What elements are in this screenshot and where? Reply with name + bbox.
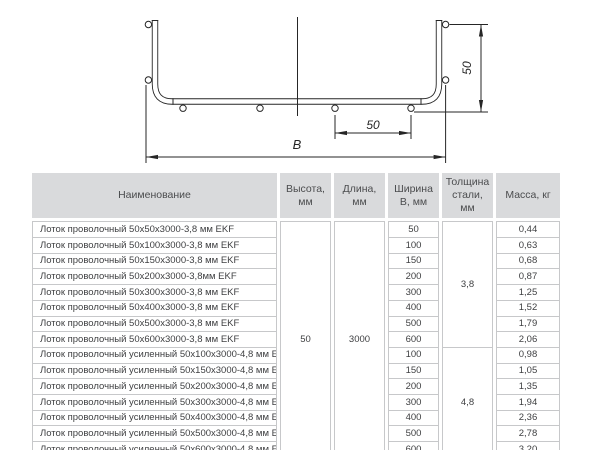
catalog-page: 50 50 B: [0, 0, 600, 450]
width-cell: 400: [388, 301, 439, 317]
product-name-cell: Лоток проволочный усиленный 50х100х3000-…: [32, 348, 277, 364]
width-cell: 150: [388, 254, 439, 270]
width-cell: 200: [388, 379, 439, 395]
width-cell: 200: [388, 269, 439, 285]
header-thickness: Толщина стали, мм: [442, 173, 493, 221]
product-name-cell: Лоток проволочный 50х50х3000-3,8 мм EKF: [32, 221, 277, 238]
product-name-cell: Лоток проволочный 50х500х3000-3,8 мм EKF: [32, 317, 277, 333]
width-cell: 500: [388, 426, 439, 442]
product-name-cell: Лоток проволочный 50х600х3000-3,8 мм EKF: [32, 332, 277, 348]
mass-cell: 0,63: [496, 238, 560, 254]
mass-cell: 0,87: [496, 269, 560, 285]
spec-table: Наименование Высота, мм Длина, мм Ширина…: [29, 173, 563, 450]
spec-table-header: Наименование Высота, мм Длина, мм Ширина…: [32, 173, 560, 221]
header-name: Наименование: [32, 173, 277, 221]
height-cell: 50: [280, 221, 331, 450]
height-dim-label: 50: [460, 61, 474, 75]
spec-table-body: Лоток проволочный 50х50х3000-3,8 мм EKF5…: [32, 221, 560, 450]
tray-cross-section-diagram: 50 50 B: [0, 0, 600, 170]
mass-cell: 0,44: [496, 221, 560, 238]
mass-cell: 1,35: [496, 379, 560, 395]
product-name-cell: Лоток проволочный усиленный 50х200х3000-…: [32, 379, 277, 395]
product-name-cell: Лоток проволочный усиленный 50х600х3000-…: [32, 442, 277, 450]
product-name-cell: Лоток проволочный 50х300х3000-3,8 мм EKF: [32, 285, 277, 301]
width-cell: 600: [388, 332, 439, 348]
mass-cell: 3,20: [496, 442, 560, 450]
width-cell: 150: [388, 364, 439, 380]
length-cell: 3000: [334, 221, 385, 450]
product-name-cell: Лоток проволочный усиленный 50х150х3000-…: [32, 364, 277, 380]
overall-width-dim-label: B: [293, 137, 302, 152]
wire-spacing-dim-label: 50: [366, 118, 380, 132]
mass-cell: 0,98: [496, 348, 560, 364]
width-cell: 100: [388, 238, 439, 254]
mass-cell: 2,78: [496, 426, 560, 442]
width-cell: 600: [388, 442, 439, 450]
spec-table-container: Наименование Высота, мм Длина, мм Ширина…: [29, 173, 563, 450]
product-name-cell: Лоток проволочный 50х400х3000-3,8 мм EKF: [32, 301, 277, 317]
wire-spacing-dimension: 50: [335, 115, 411, 139]
mass-cell: 1,52: [496, 301, 560, 317]
product-name-cell: Лоток проволочный 50х200х3000-3,8мм EKF: [32, 269, 277, 285]
product-name-cell: Лоток проволочный усиленный 50х300х3000-…: [32, 395, 277, 411]
header-length: Длина, мм: [334, 173, 385, 221]
mass-cell: 1,94: [496, 395, 560, 411]
width-cell: 50: [388, 221, 439, 238]
mass-cell: 2,06: [496, 332, 560, 348]
tray-diagram-svg: 50 50 B: [0, 0, 600, 170]
width-cell: 500: [388, 317, 439, 333]
mass-cell: 1,05: [496, 364, 560, 380]
thickness-cell: 3,8: [442, 221, 493, 348]
product-name-cell: Лоток проволочный усиленный 50х500х3000-…: [32, 426, 277, 442]
width-cell: 400: [388, 411, 439, 427]
width-cell: 300: [388, 285, 439, 301]
mass-cell: 0,68: [496, 254, 560, 270]
header-width: Ширина В, мм: [388, 173, 439, 221]
table-row: Лоток проволочный 50х50х3000-3,8 мм EKF5…: [32, 221, 560, 238]
mass-cell: 1,79: [496, 317, 560, 333]
product-name-cell: Лоток проволочный усиленный 50х400х3000-…: [32, 411, 277, 427]
width-cell: 300: [388, 395, 439, 411]
thickness-cell: 4,8: [442, 348, 493, 450]
header-mass: Масса, кг: [496, 173, 560, 221]
mass-cell: 2,36: [496, 411, 560, 427]
overall-width-dimension: B: [146, 85, 446, 163]
product-name-cell: Лоток проволочный 50х100х3000-3,8 мм EKF: [32, 238, 277, 254]
product-name-cell: Лоток проволочный 50х150х3000-3,8 мм EKF: [32, 254, 277, 270]
header-height: Высота, мм: [280, 173, 331, 221]
mass-cell: 1,25: [496, 285, 560, 301]
width-cell: 100: [388, 348, 439, 364]
